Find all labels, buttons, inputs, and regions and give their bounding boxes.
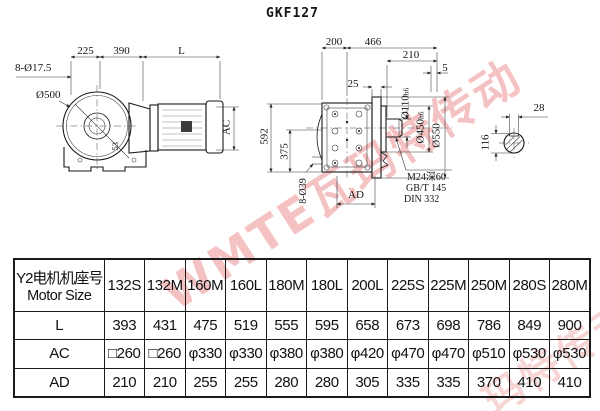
table-cell: 255 <box>185 368 226 397</box>
dim-466: 466 <box>358 37 388 48</box>
dim-375: 375 <box>280 139 291 165</box>
technical-drawing-page: WMTE瓦玛特传动 玛特传动 .o{fill:none;stroke:#1a1a… <box>0 0 600 411</box>
table-cell: φ420 <box>347 339 388 368</box>
flange-diameter-550-label: Ø550 <box>432 119 443 153</box>
column-header: 225S <box>388 259 429 311</box>
table-cell: 210 <box>104 368 145 397</box>
row-label: L <box>14 311 104 339</box>
bolt-holes-39-label: 8-Ø39 <box>299 170 309 212</box>
dim-225: 225 <box>72 46 99 57</box>
table-header-row: Y2电机机座号 Motor Size 132S 132M 160M 160L 1… <box>14 259 590 311</box>
table-cell: φ470 <box>428 339 469 368</box>
dim-AC: AC <box>222 118 233 138</box>
column-header: 180M <box>266 259 307 311</box>
column-header: 225M <box>428 259 469 311</box>
dim-390: 390 <box>108 46 135 57</box>
table-cell: 475 <box>185 311 226 339</box>
table-cell: 410 <box>550 368 591 397</box>
bolt-holes-label: 8-Ø17.5 <box>15 63 51 74</box>
table-cell: 335 <box>388 368 429 397</box>
table-cell: φ530 <box>550 339 591 368</box>
motor-size-header-cn: Y2电机机座号 <box>15 267 104 288</box>
spigot-diameter-value: Ø450 <box>415 119 427 143</box>
dimension-table: Y2电机机座号 Motor Size 132S 132M 160M 160L 1… <box>13 258 591 398</box>
dim-592: 592 <box>260 124 271 150</box>
column-header: 250M <box>469 259 510 311</box>
table-cell: 849 <box>509 311 550 339</box>
dim-25: 25 <box>344 79 362 90</box>
standard-gbt-label: GB/T 145 <box>406 184 446 194</box>
table-cell: □260 <box>145 339 186 368</box>
column-header: 132S <box>104 259 145 311</box>
table-row-AC: AC □260 □260 φ330 φ330 φ380 φ380 φ420 φ4… <box>14 339 590 368</box>
dim-5: 5 <box>440 63 450 74</box>
table-cell: 900 <box>550 311 591 339</box>
column-header: 280M <box>550 259 591 311</box>
flange-diameter-label: Ø500 <box>36 90 60 101</box>
shaft-height-label: 116 <box>481 129 492 157</box>
tapped-hole-label: M24深60 <box>407 173 446 183</box>
table-cell: φ330 <box>226 339 267 368</box>
dim-210: 210 <box>398 50 424 61</box>
table-cell: □260 <box>104 339 145 368</box>
table-cell: 393 <box>104 311 145 339</box>
table-cell: 595 <box>307 311 348 339</box>
table-cell: 305 <box>347 368 388 397</box>
table-cell: 280 <box>307 368 348 397</box>
table-cell: 431 <box>145 311 186 339</box>
table-cell: 555 <box>266 311 307 339</box>
column-header: 180L <box>307 259 348 311</box>
shaft-key-detail <box>491 114 548 161</box>
standard-din-label: DIN 332 <box>404 195 439 205</box>
shaft-diameter-label: Ø110h6 <box>401 79 412 129</box>
table-cell: φ530 <box>509 339 550 368</box>
table-cell: φ380 <box>307 339 348 368</box>
table-row-L: L 393 431 475 519 555 595 658 673 698 78… <box>14 311 590 339</box>
spigot-diameter-label: Ø450h6 <box>416 105 427 151</box>
hub-label: 53 <box>111 138 120 154</box>
dim-L: L <box>168 46 195 57</box>
column-header: 132M <box>145 259 186 311</box>
table-cell: φ510 <box>469 339 510 368</box>
table-cell: 280 <box>266 368 307 397</box>
table-cell: 658 <box>347 311 388 339</box>
column-header: 200L <box>347 259 388 311</box>
column-header: 280S <box>509 259 550 311</box>
table-cell: 210 <box>145 368 186 397</box>
table-cell: φ380 <box>266 339 307 368</box>
table-cell: 519 <box>226 311 267 339</box>
drawing-title: GKF127 <box>266 7 319 20</box>
table-cell: φ470 <box>388 339 429 368</box>
key-width-label: 28 <box>530 103 548 114</box>
table-cell: 410 <box>509 368 550 397</box>
motor-size-header-en: Motor Size <box>15 288 104 304</box>
column-header: 160L <box>226 259 267 311</box>
column-header: 160M <box>185 259 226 311</box>
table-cell: 673 <box>388 311 429 339</box>
table-cell: 335 <box>428 368 469 397</box>
shaft-diameter-value: Ø110 <box>400 95 412 119</box>
table-cell: 370 <box>469 368 510 397</box>
table-cell: 255 <box>226 368 267 397</box>
dim-AD: AD <box>344 190 368 201</box>
table-cell: 786 <box>469 311 510 339</box>
spigot-fit: h6 <box>417 112 426 120</box>
table-cell: φ330 <box>185 339 226 368</box>
table-row-AD: AD 210 210 255 255 280 280 305 335 335 3… <box>14 368 590 397</box>
table-cell: 698 <box>428 311 469 339</box>
row-label: AD <box>14 368 104 397</box>
dim-200: 200 <box>321 37 347 48</box>
row-label: AC <box>14 339 104 368</box>
motor-size-header-cell: Y2电机机座号 Motor Size <box>14 259 104 311</box>
shaft-fit: h6 <box>402 88 411 96</box>
side-view-gearbox <box>16 57 239 171</box>
